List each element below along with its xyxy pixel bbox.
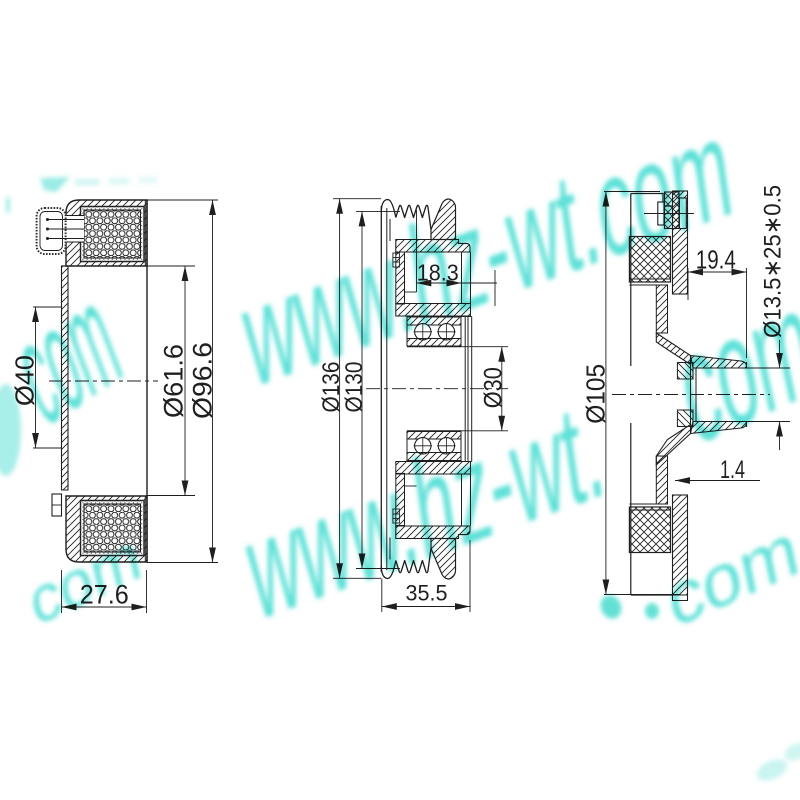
svg-text:Ø96.6: Ø96.6 xyxy=(187,342,217,419)
svg-text:Ø61.6: Ø61.6 xyxy=(159,344,189,418)
